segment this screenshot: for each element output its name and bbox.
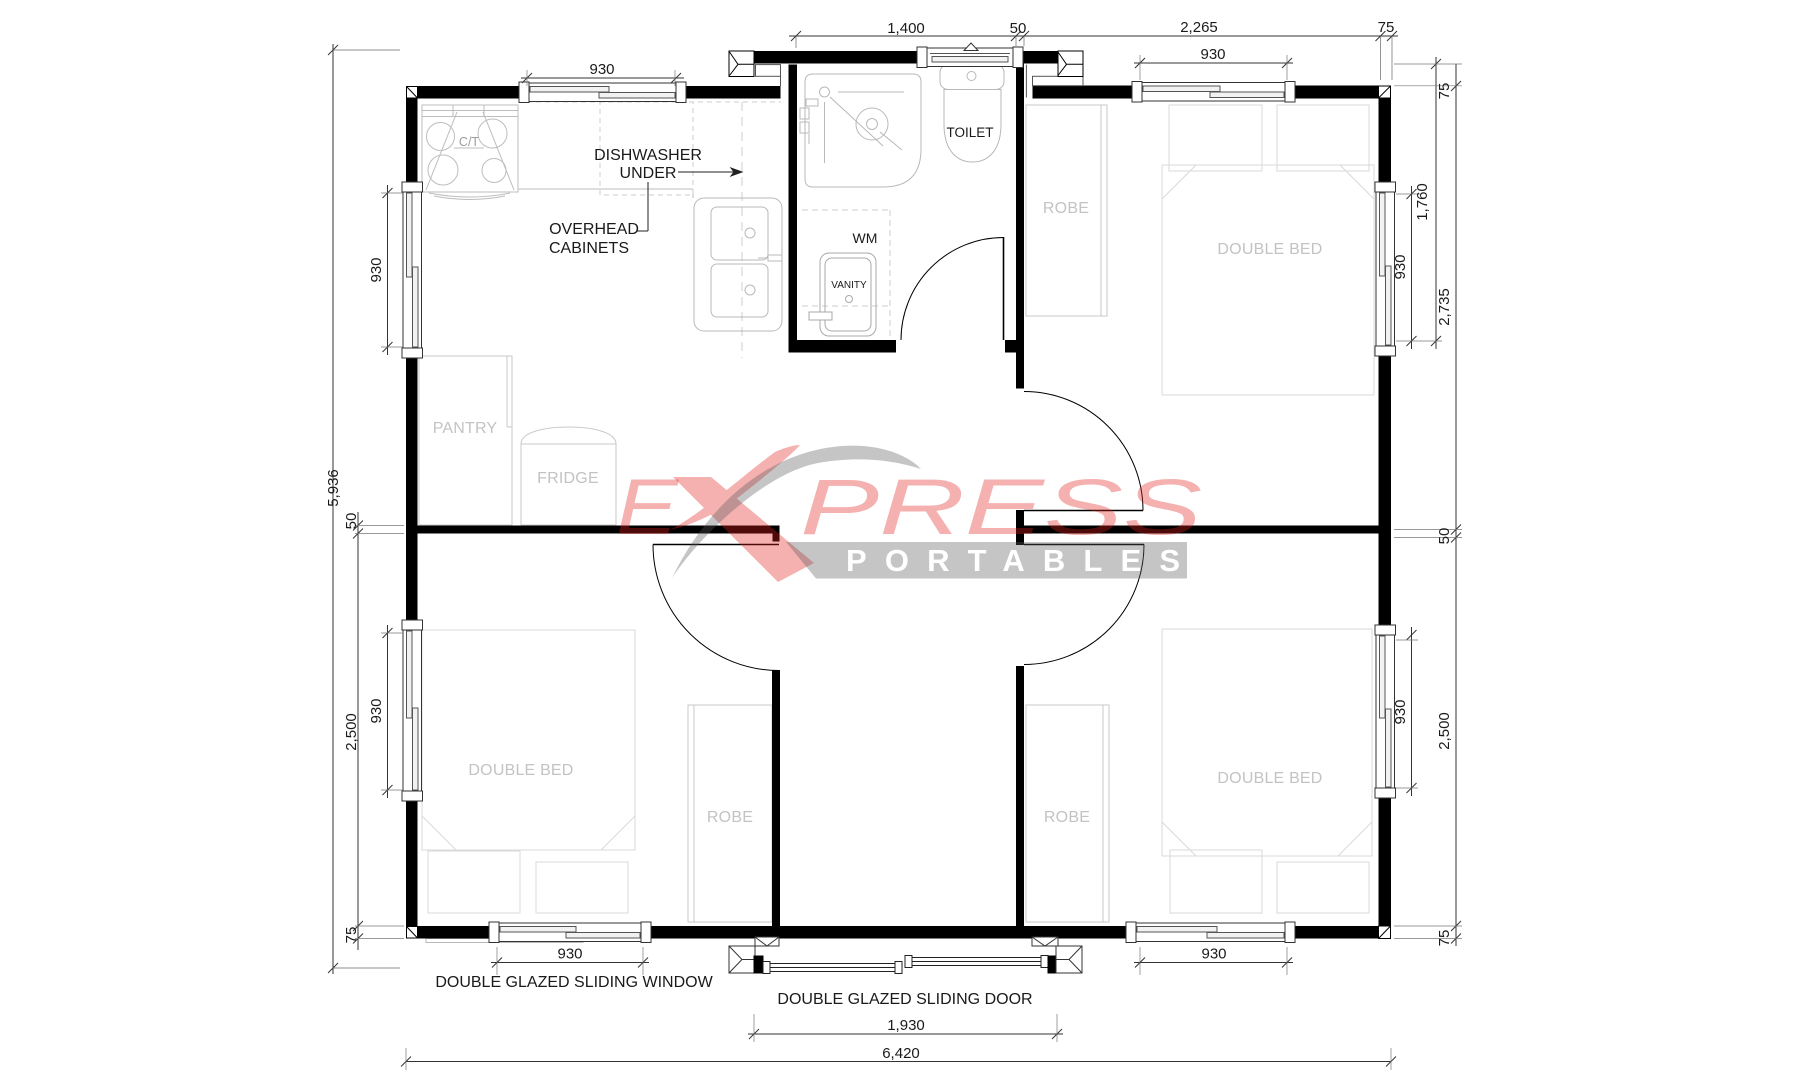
svg-text:PRESS: PRESS bbox=[800, 462, 1202, 551]
svg-text:2,265: 2,265 bbox=[1180, 19, 1218, 36]
svg-text:930: 930 bbox=[1392, 254, 1409, 279]
svg-text:CABINETS: CABINETS bbox=[549, 240, 629, 257]
svg-text:930: 930 bbox=[368, 257, 385, 282]
svg-text:2,500: 2,500 bbox=[1436, 712, 1453, 750]
svg-text:75: 75 bbox=[1436, 83, 1453, 100]
svg-text:PANTRY: PANTRY bbox=[433, 420, 498, 437]
svg-text:930: 930 bbox=[589, 61, 614, 78]
svg-text:1,760: 1,760 bbox=[1414, 183, 1431, 221]
svg-text:DOUBLE GLAZED SLIDING WINDOW: DOUBLE GLAZED SLIDING WINDOW bbox=[435, 974, 713, 991]
svg-text:DOUBLE BED: DOUBLE BED bbox=[468, 762, 573, 779]
svg-text:VANITY: VANITY bbox=[831, 280, 867, 291]
svg-text:WM: WM bbox=[853, 230, 878, 246]
svg-text:930: 930 bbox=[1200, 46, 1225, 63]
svg-text:PORTABLES: PORTABLES bbox=[846, 543, 1180, 578]
svg-text:ROBE: ROBE bbox=[1043, 200, 1089, 217]
svg-text:930: 930 bbox=[557, 946, 582, 963]
svg-text:1,930: 1,930 bbox=[887, 1017, 925, 1034]
svg-text:930: 930 bbox=[1201, 946, 1226, 963]
svg-text:50: 50 bbox=[1436, 528, 1453, 545]
svg-text:1,400: 1,400 bbox=[887, 20, 925, 37]
svg-text:DOUBLE BED: DOUBLE BED bbox=[1217, 770, 1322, 787]
svg-text:ROBE: ROBE bbox=[1044, 809, 1090, 826]
svg-text:UNDER: UNDER bbox=[620, 165, 677, 182]
svg-text:FRIDGE: FRIDGE bbox=[537, 470, 599, 487]
svg-text:2,735: 2,735 bbox=[1436, 288, 1453, 326]
svg-text:930: 930 bbox=[368, 698, 385, 723]
svg-text:5,936: 5,936 bbox=[325, 469, 342, 507]
svg-text:50: 50 bbox=[343, 513, 360, 530]
svg-text:OVERHEAD: OVERHEAD bbox=[549, 221, 639, 238]
svg-text:E: E bbox=[616, 462, 680, 551]
svg-text:75: 75 bbox=[1436, 930, 1453, 947]
svg-text:75: 75 bbox=[1378, 19, 1395, 36]
svg-text:75: 75 bbox=[343, 927, 360, 944]
svg-text:C/T: C/T bbox=[459, 135, 480, 149]
svg-text:930: 930 bbox=[1392, 699, 1409, 724]
svg-text:DOUBLE GLAZED SLIDING DOOR: DOUBLE GLAZED SLIDING DOOR bbox=[777, 991, 1032, 1008]
svg-text:6,420: 6,420 bbox=[882, 1045, 920, 1062]
svg-text:50: 50 bbox=[1010, 20, 1027, 37]
svg-text:DOUBLE BED: DOUBLE BED bbox=[1217, 241, 1322, 258]
svg-text:2,500: 2,500 bbox=[343, 713, 360, 751]
svg-text:DISHWASHER: DISHWASHER bbox=[594, 147, 702, 164]
svg-text:TOILET: TOILET bbox=[946, 125, 993, 140]
svg-text:ROBE: ROBE bbox=[707, 809, 753, 826]
